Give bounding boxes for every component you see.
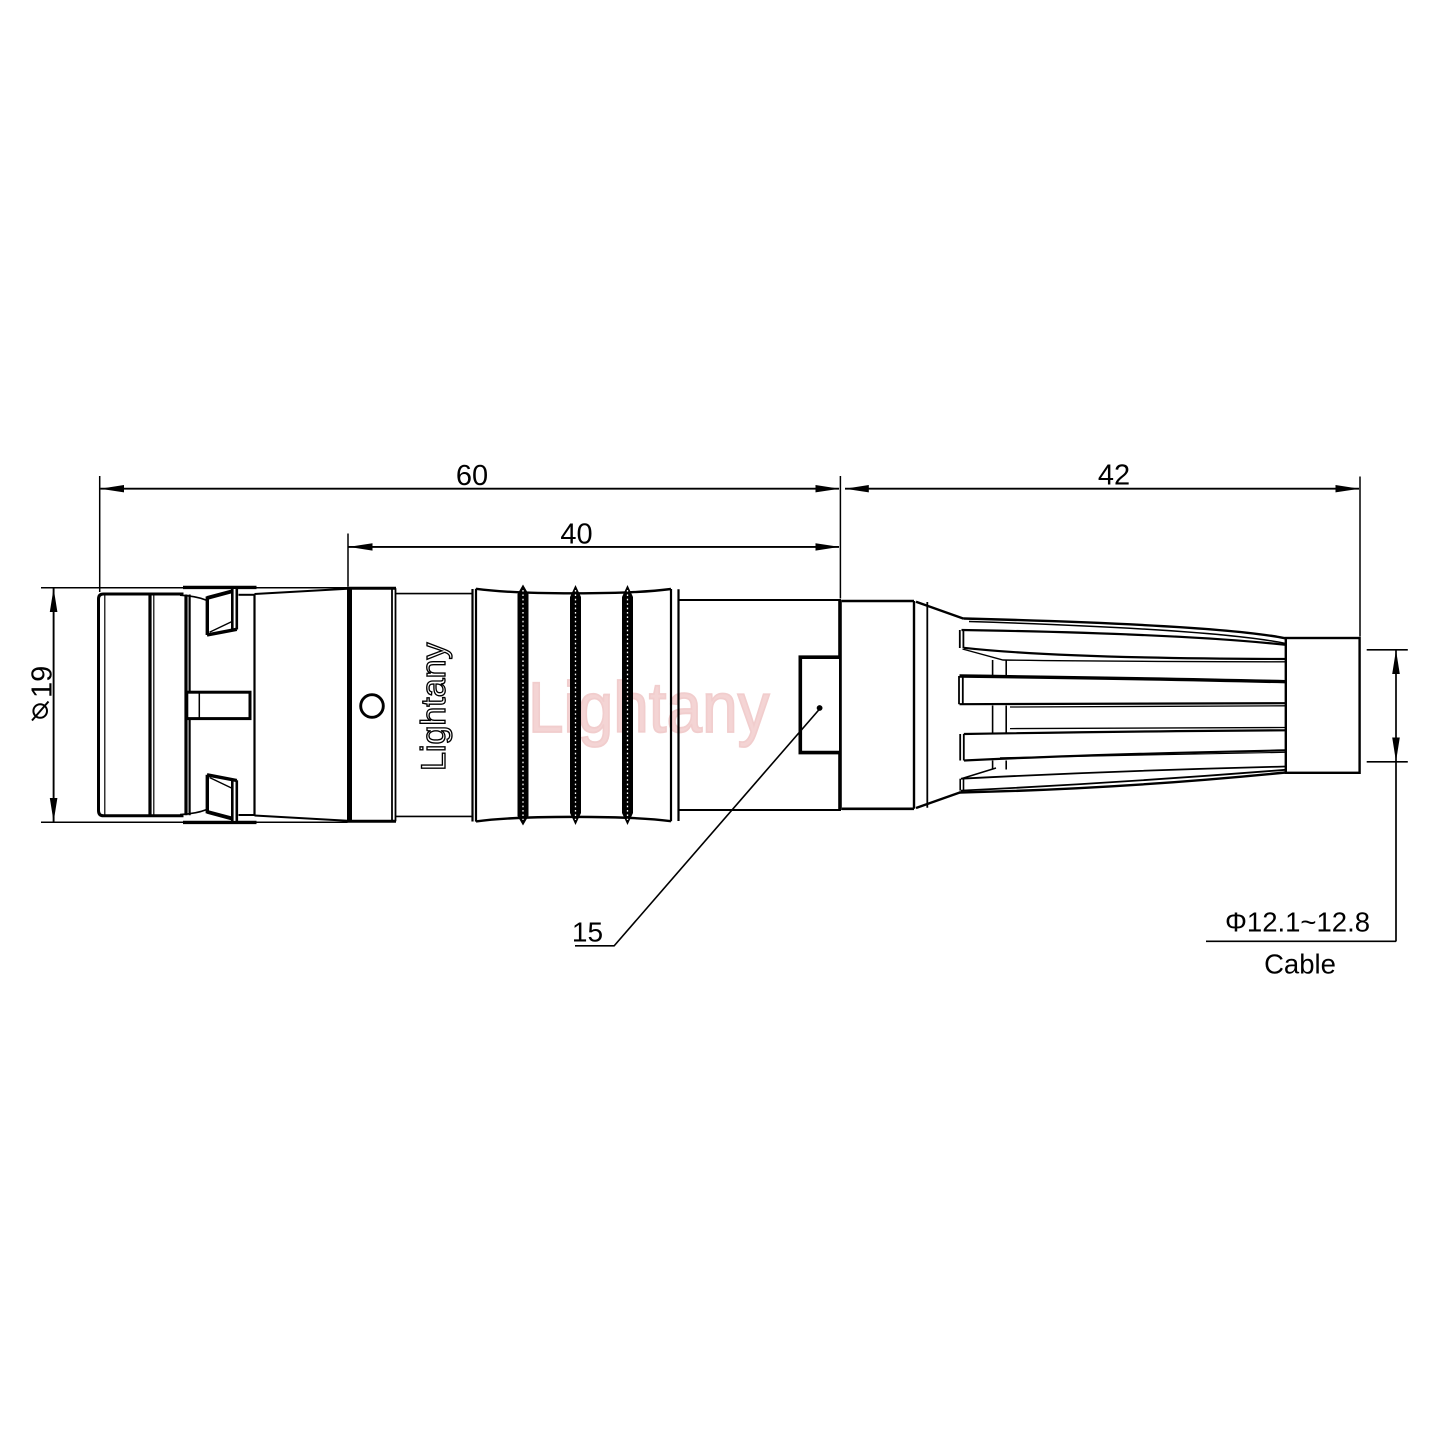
svg-text:40: 40 — [560, 519, 592, 551]
svg-text:Φ12.1~12.8: Φ12.1~12.8 — [1225, 907, 1370, 938]
svg-text:19: 19 — [27, 666, 59, 698]
svg-text:Lightany: Lightany — [415, 642, 453, 771]
svg-text:60: 60 — [456, 460, 488, 492]
svg-text:Lightany: Lightany — [528, 669, 770, 748]
svg-text:15: 15 — [572, 917, 603, 948]
svg-text:Cable: Cable — [1264, 949, 1336, 980]
svg-text:42: 42 — [1098, 460, 1130, 492]
